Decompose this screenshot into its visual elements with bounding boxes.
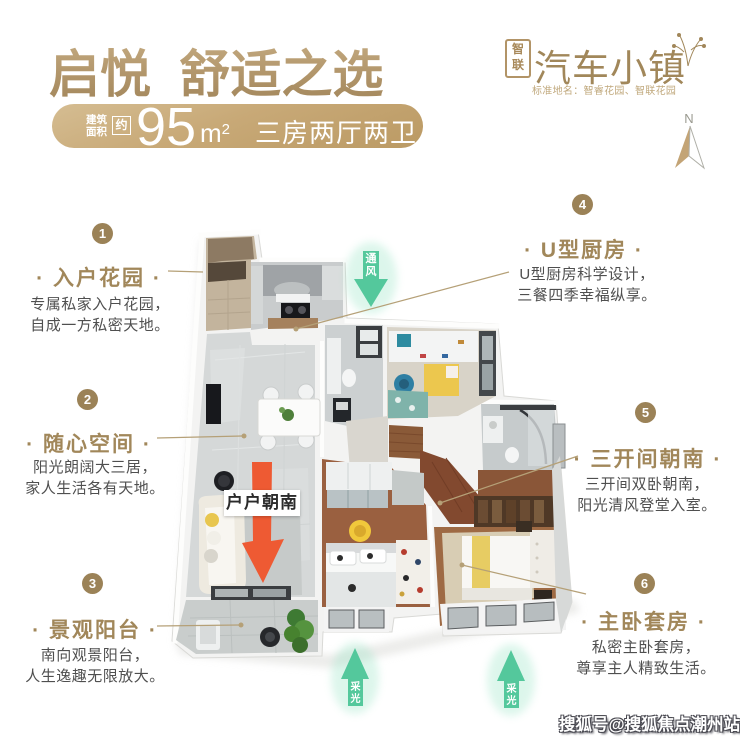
svg-text:风: 风 xyxy=(366,264,377,278)
svg-text:采: 采 xyxy=(506,682,517,695)
svg-text:通: 通 xyxy=(366,252,377,265)
svg-text:采: 采 xyxy=(350,680,361,693)
svg-text:光: 光 xyxy=(350,692,361,705)
svg-text:光: 光 xyxy=(506,694,517,707)
svg-text:N: N xyxy=(684,111,693,126)
